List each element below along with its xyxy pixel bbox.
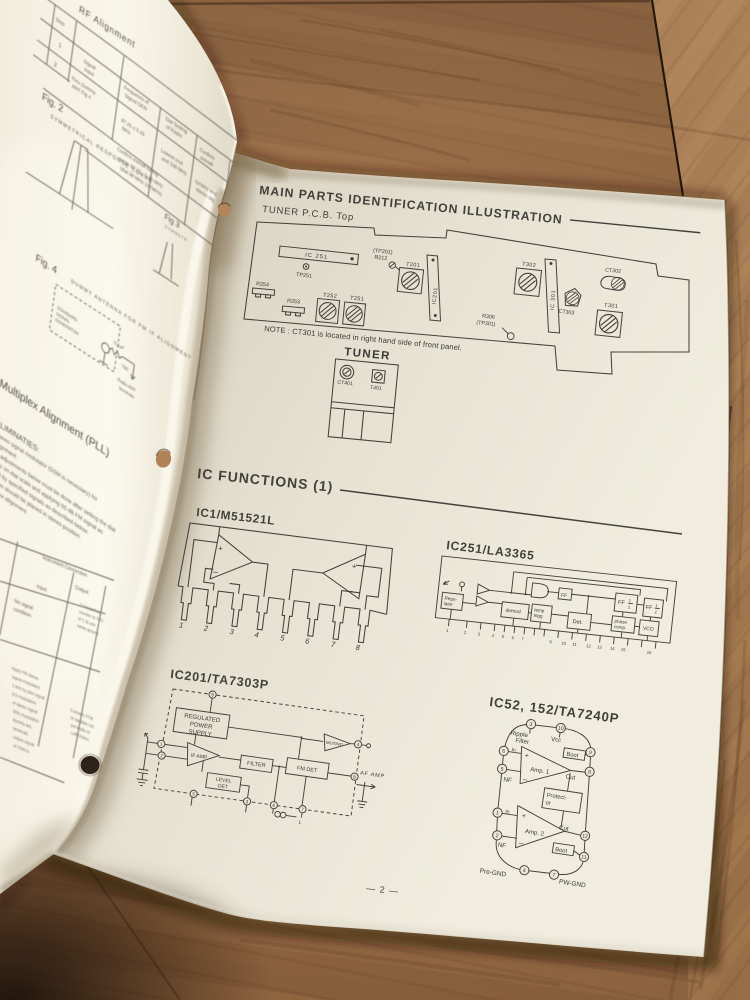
svg-text:FF: FF <box>618 600 626 607</box>
svg-text:lator: lator <box>444 601 454 607</box>
svg-text:R254: R254 <box>256 281 269 288</box>
svg-text:11: 11 <box>581 854 587 861</box>
svg-text:NF: NF <box>503 776 512 784</box>
svg-text:Det.: Det. <box>572 619 583 626</box>
svg-text:FF: FF <box>645 605 653 612</box>
svg-text:NF: NF <box>497 842 506 850</box>
svg-text:T401: T401 <box>370 385 382 392</box>
svg-text:Cut: Cut <box>558 824 569 832</box>
svg-text:Cut: Cut <box>565 773 576 781</box>
svg-text:FF: FF <box>561 593 568 600</box>
svg-text:or: or <box>545 800 551 807</box>
svg-text:trigg: trigg <box>533 613 543 619</box>
svg-text:10: 10 <box>557 726 564 733</box>
svg-text:12: 12 <box>582 833 589 840</box>
svg-text:VCO: VCO <box>643 626 655 633</box>
svg-text:R253: R253 <box>287 298 300 305</box>
